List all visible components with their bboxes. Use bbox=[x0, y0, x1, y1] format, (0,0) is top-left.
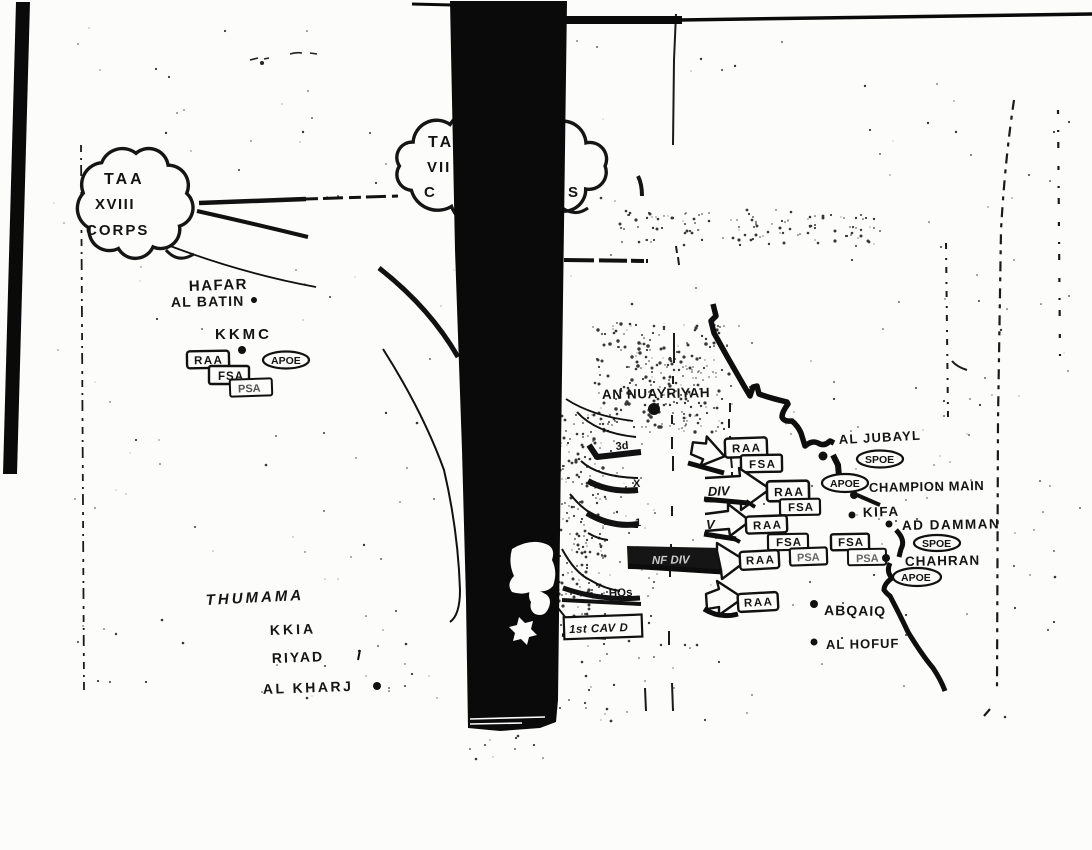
svg-text:APOE: APOE bbox=[830, 478, 860, 490]
svg-text:3d: 3d bbox=[615, 440, 629, 453]
svg-text:X: X bbox=[633, 478, 641, 490]
svg-text:AD DAMMAN: AD DAMMAN bbox=[902, 516, 1000, 533]
svg-text:AL KHARJ: AL KHARJ bbox=[263, 678, 354, 697]
svg-text:XVIII: XVIII bbox=[95, 196, 135, 213]
svg-text:SPOE: SPOE bbox=[922, 538, 951, 550]
svg-text:KIFA: KIFA bbox=[863, 504, 900, 520]
svg-text:AL BATIN: AL BATIN bbox=[171, 293, 245, 310]
svg-text:CHAMPION MAIN: CHAMPION MAIN bbox=[869, 478, 985, 495]
svg-text:FSA: FSA bbox=[838, 537, 864, 549]
svg-text:1: 1 bbox=[635, 517, 641, 529]
svg-text:FSA: FSA bbox=[788, 502, 814, 514]
svg-text:RIYAD: RIYAD bbox=[272, 648, 325, 666]
svg-text:TAA: TAA bbox=[104, 171, 145, 188]
svg-text:PSA: PSA bbox=[856, 553, 879, 565]
svg-text:APOE: APOE bbox=[271, 355, 301, 367]
svg-text:ABQAIQ: ABQAIQ bbox=[824, 602, 886, 619]
svg-text:VII: VII bbox=[427, 159, 451, 176]
svg-text:RAA: RAA bbox=[744, 596, 774, 610]
svg-text:RAA: RAA bbox=[746, 554, 776, 568]
svg-text:RAA: RAA bbox=[774, 485, 805, 500]
svg-text:FSA: FSA bbox=[749, 459, 777, 471]
svg-text:1st CAV D: 1st CAV D bbox=[569, 622, 629, 636]
svg-text:KKIA: KKIA bbox=[270, 620, 317, 638]
svg-text:AN NUAYRIYAH: AN NUAYRIYAH bbox=[602, 385, 710, 402]
svg-text:CORPS: CORPS bbox=[86, 222, 149, 239]
svg-text:KKMC: KKMC bbox=[215, 326, 272, 343]
svg-text:SPOE: SPOE bbox=[865, 454, 894, 466]
svg-text:RAA: RAA bbox=[732, 442, 762, 455]
svg-text:RAA: RAA bbox=[753, 519, 783, 532]
svg-text:AL HOFUF: AL HOFUF bbox=[826, 636, 900, 652]
svg-text:HQs: HQs bbox=[609, 587, 633, 600]
svg-text:NF DIV: NF DIV bbox=[652, 554, 691, 567]
svg-text:APOE: APOE bbox=[901, 572, 931, 584]
svg-text:PSA: PSA bbox=[238, 383, 261, 396]
svg-text:CHAHRAN: CHAHRAN bbox=[905, 553, 981, 569]
svg-text:DIV: DIV bbox=[708, 483, 732, 499]
svg-text:V: V bbox=[706, 517, 716, 532]
svg-text:PSA: PSA bbox=[797, 552, 820, 565]
